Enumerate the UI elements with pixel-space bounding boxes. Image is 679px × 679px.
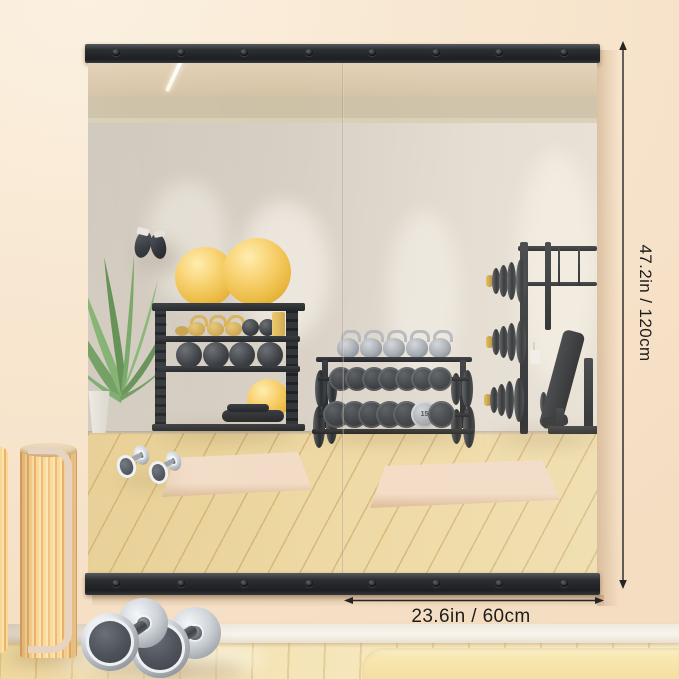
barbell-plate bbox=[315, 370, 326, 408]
rack-upright bbox=[578, 248, 580, 286]
rack-floor-shadow bbox=[158, 429, 298, 439]
gold-plate bbox=[175, 326, 189, 336]
screw bbox=[368, 580, 376, 587]
rack-shelf bbox=[157, 366, 300, 372]
yoga-mat bbox=[162, 452, 312, 497]
rack-upright bbox=[558, 248, 560, 286]
rack-floor-shadow bbox=[496, 433, 596, 443]
exercise-ball bbox=[223, 238, 291, 306]
dumbbell-disc bbox=[428, 367, 452, 391]
medicine-ball bbox=[257, 342, 283, 368]
rack-post bbox=[545, 242, 551, 330]
medicine-ball bbox=[242, 319, 259, 336]
screw bbox=[432, 49, 440, 56]
mirror-glass: 15 bbox=[88, 63, 597, 573]
dumbbell-front-disc bbox=[81, 613, 139, 671]
screw bbox=[305, 49, 313, 56]
wood-roller-partial bbox=[0, 447, 8, 653]
gold-kettlebell bbox=[225, 322, 242, 336]
screw bbox=[240, 49, 248, 56]
gold-kettlebell bbox=[188, 322, 205, 336]
dumbbell-rack: 15 bbox=[310, 330, 478, 434]
screw bbox=[240, 580, 248, 587]
screw bbox=[560, 580, 568, 587]
rack-floor-shadow bbox=[313, 430, 473, 440]
rack-side-panel bbox=[286, 304, 298, 426]
rack-shelf bbox=[157, 336, 300, 342]
gym-mirror: 15 bbox=[88, 44, 597, 595]
product-image: 15 bbox=[0, 0, 679, 679]
screw bbox=[432, 580, 440, 587]
screw bbox=[560, 49, 568, 56]
roller-strap bbox=[28, 447, 72, 653]
medicine-ball bbox=[176, 342, 202, 368]
rack-shelf bbox=[152, 303, 305, 311]
mirror-seam bbox=[342, 63, 344, 573]
floor-mat bbox=[362, 648, 679, 679]
mirror-shadow-right bbox=[597, 50, 619, 606]
hang-tag bbox=[530, 350, 541, 365]
dumbbell-disc bbox=[428, 401, 455, 428]
kettlebell bbox=[383, 338, 405, 358]
gold-kettlebell bbox=[207, 322, 224, 336]
yoga-block bbox=[272, 312, 285, 336]
screw bbox=[305, 580, 313, 587]
kettlebell bbox=[406, 338, 428, 358]
kettlebell bbox=[429, 338, 451, 358]
yoga-mat bbox=[370, 460, 560, 508]
screw bbox=[495, 580, 503, 587]
screw bbox=[112, 580, 120, 587]
medicine-ball bbox=[229, 342, 255, 368]
screw bbox=[177, 49, 185, 56]
mirror-top-strip bbox=[85, 44, 600, 63]
stored-plates bbox=[227, 404, 269, 412]
kettlebell bbox=[337, 338, 359, 358]
barbell-plate bbox=[462, 370, 473, 408]
screw bbox=[112, 49, 120, 56]
bench-upright bbox=[584, 358, 593, 432]
screw bbox=[177, 580, 185, 587]
screw bbox=[368, 49, 376, 56]
rack-shelf bbox=[316, 357, 472, 362]
height-dimension-label: 47.2in / 120cm bbox=[635, 244, 655, 361]
mirror-bottom-strip bbox=[85, 573, 600, 595]
width-dimension-label: 23.6in / 60cm bbox=[411, 606, 530, 628]
screw bbox=[495, 49, 503, 56]
medicine-ball bbox=[203, 342, 229, 368]
storage-rack bbox=[152, 298, 308, 434]
kettlebell bbox=[360, 338, 382, 358]
height-dimension-arrow bbox=[619, 41, 627, 589]
power-rack bbox=[490, 240, 597, 440]
